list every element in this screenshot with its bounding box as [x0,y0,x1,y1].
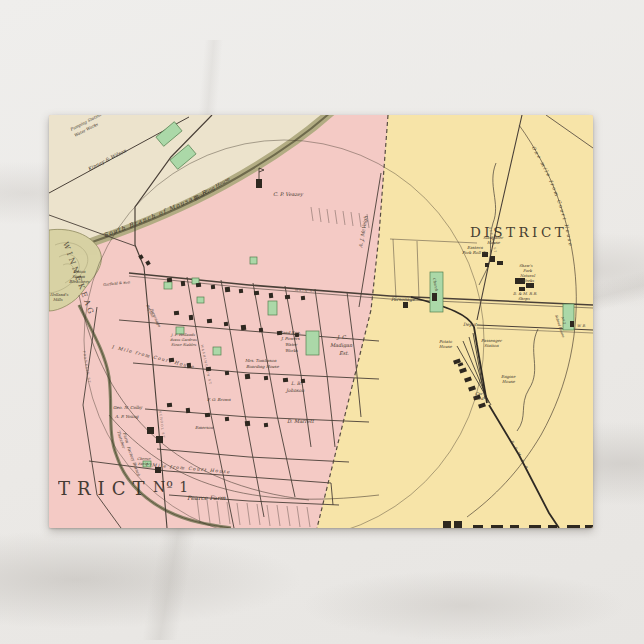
green-building [306,331,319,355]
cutoff-title-letter [443,521,451,528]
marble-background: { "scene": { "description": "vintage dis… [0,0,644,644]
building [147,427,154,434]
map-label: Stone Stables [171,343,197,347]
building [186,408,191,413]
map-label: Geo. N. Colby [113,405,143,410]
map-label: Mills [53,297,64,302]
building [254,291,259,296]
building [241,325,246,330]
building [196,283,201,288]
cutoff-title-letter [548,525,557,528]
building [403,302,408,308]
map-label: House [502,379,516,384]
building [245,421,250,426]
map-label: Mrs. Tomlinson [245,358,277,363]
building [225,287,230,292]
green-building [164,282,172,289]
map-label: Hand Eng. [279,330,301,335]
map-label: Water [285,342,298,347]
map-label: Station [484,343,499,348]
map-label: Parsonage [391,297,415,302]
map-label: Factory [138,462,153,466]
district-title: Nº 1 [153,479,189,495]
cutoff-title-letter [567,525,580,528]
building [239,289,243,293]
map-label: W. B. [577,324,586,328]
building [167,278,172,283]
building [225,371,229,375]
building [211,285,215,289]
green-building [197,297,204,303]
cutoff-title-letter [585,525,593,528]
map-label: J. C. [336,334,347,341]
vintage-district-map: South Branch of Mousam R.One mile from C… [49,115,593,528]
map-label: F. O. Brown [207,397,231,402]
map-label: House [439,344,453,349]
map-label: Madigan [330,342,353,349]
building [490,256,495,262]
building [181,281,186,286]
building [224,322,228,326]
building [205,413,210,418]
map-label: J. Powers [280,336,300,341]
map-label: Emerson [195,425,213,430]
map-label: L. B. [291,381,302,386]
map-label: Works [285,348,299,353]
building [264,423,268,427]
map-label: Pearce Farm [187,494,226,501]
building [207,319,212,324]
building [167,403,172,408]
cutoff-title-letter [454,521,462,528]
building [225,417,229,421]
building [301,296,305,300]
cutoff-title-letter [491,525,503,528]
map-label: Bleachery [69,279,90,284]
building [264,376,268,380]
building [485,263,489,267]
map-label: Depot [463,322,478,327]
map-label: Johnson [285,388,304,393]
green-building [250,257,257,264]
building [174,311,179,316]
map-label: J. F. Hollands [170,333,196,337]
building [256,179,262,188]
building [570,321,574,327]
map-label: Boarding House [246,364,279,369]
map-label: Shed [473,396,484,401]
building [189,315,194,320]
cutoff-title-letter [529,525,541,528]
building [285,295,290,300]
green-building [268,301,277,315]
building [432,293,437,301]
map-label: D. Marrett [287,418,315,424]
cutoff-title-letter [510,525,519,528]
map-label: Est. [339,350,349,356]
building [245,374,250,379]
building [259,328,263,332]
map-label: Pork Roll Co. [462,250,488,255]
map-label: Brass Gardens [170,338,198,342]
map-label: Works [522,278,535,283]
building [497,261,503,265]
marble-vein [0,520,380,640]
green-building [213,347,221,355]
building [283,378,288,383]
map-label: Shops [518,296,531,301]
building [526,283,534,288]
map-label: Cheese [137,457,151,461]
district-title: TRICT [58,478,151,499]
cutoff-title-letter [473,525,483,528]
map-label: A. P. Young [114,414,140,419]
postcard[interactable]: South Branch of Mousam R.One mile from C… [49,115,593,528]
map-label: C. P. Veazey [273,191,304,198]
building [269,293,274,298]
